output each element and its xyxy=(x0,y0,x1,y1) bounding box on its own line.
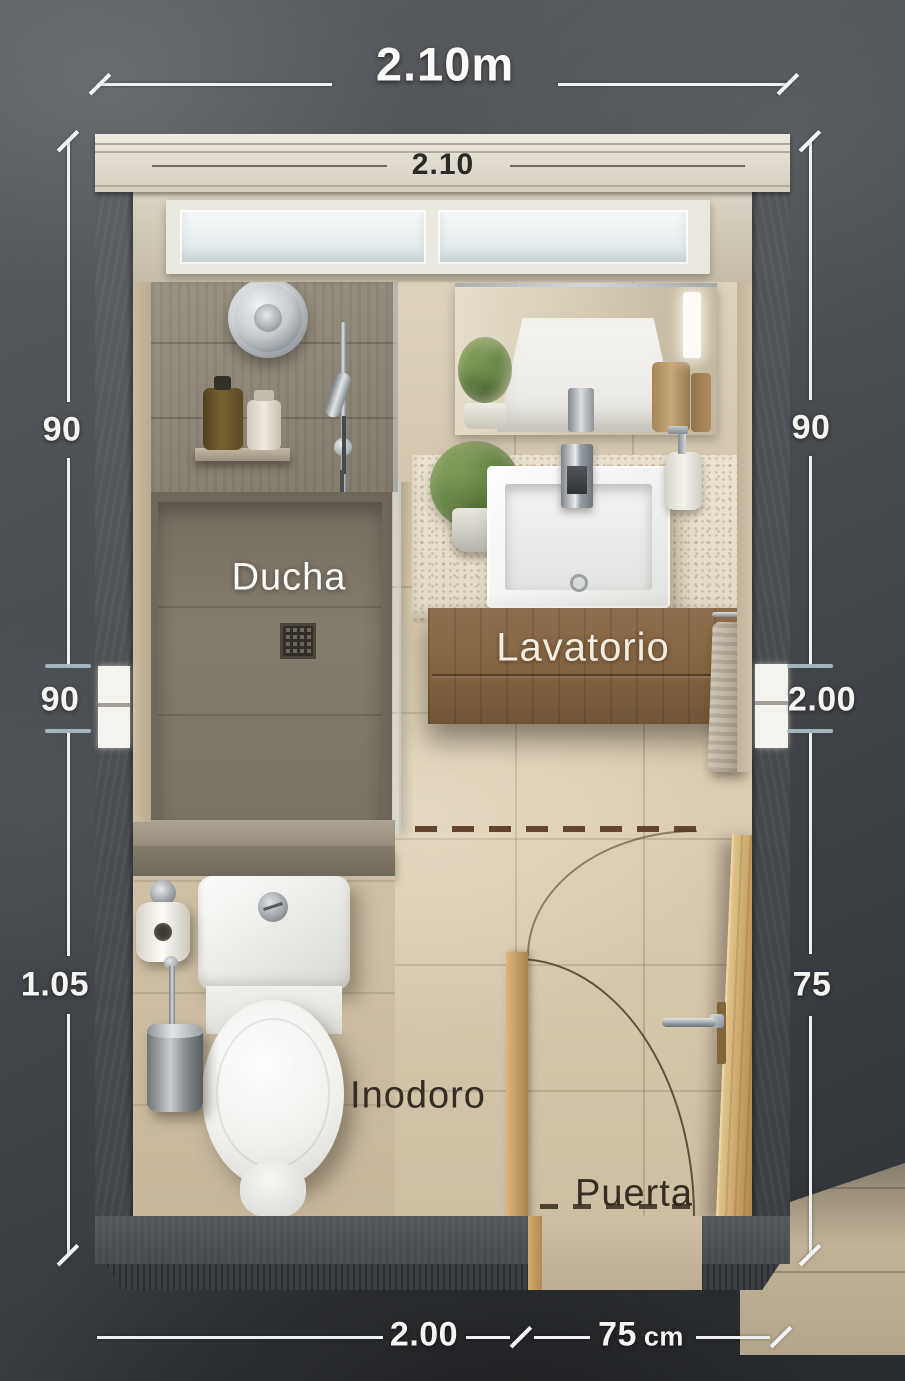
toilet-seat-ring xyxy=(216,1018,330,1168)
toilet-paper-roll xyxy=(136,902,190,962)
opening-extent-tick xyxy=(45,729,91,733)
sink-drain xyxy=(570,574,588,592)
vanity-area-label: Lavatorio xyxy=(496,626,670,671)
half-wall-front xyxy=(133,846,395,876)
dimension-line-segment xyxy=(534,1336,590,1339)
dimension-line-segment xyxy=(97,1336,383,1339)
shower-boundary-dashed-line xyxy=(415,826,707,832)
inner-width-label: 2.10 xyxy=(412,148,474,182)
soap-dispenser xyxy=(666,452,702,510)
mirror-reflection-pot xyxy=(464,403,506,429)
shower-area-label: Ducha xyxy=(232,557,347,600)
left-middle-dimension: 90 xyxy=(41,681,80,720)
dimension-tick xyxy=(510,1326,532,1348)
sink-faucet xyxy=(561,444,593,508)
dimension-line-segment xyxy=(809,456,812,666)
shampoo-bottle-white xyxy=(247,400,281,450)
dimension-line-segment xyxy=(466,1336,510,1339)
shower-tray xyxy=(148,492,392,832)
dimension-line-segment xyxy=(809,733,812,954)
dimension-line-segment xyxy=(809,1016,812,1254)
dimension-line-segment xyxy=(67,733,70,956)
mirror-light-strip xyxy=(683,292,701,358)
toilet-area-label: Inodoro xyxy=(350,1075,486,1118)
floorplan-canvas: Ducha Lavatorio Inodoro xyxy=(0,0,905,1381)
half-wall-top xyxy=(133,820,395,846)
dimension-line-segment xyxy=(100,83,332,86)
toilet-base xyxy=(240,1162,306,1218)
opening-extent-tick xyxy=(787,729,833,733)
dimension-line-segment xyxy=(67,458,70,666)
mirror-reflection-faucet xyxy=(568,388,594,432)
skylight-pane-left xyxy=(180,210,426,264)
opening-extent-tick xyxy=(45,664,91,668)
left-wall-opening-marker xyxy=(98,666,130,748)
rain-shower-head xyxy=(228,278,308,358)
mirror-reflection-soap xyxy=(652,362,690,432)
skylight-pane-right xyxy=(438,210,688,264)
door-threshold xyxy=(528,1216,702,1290)
mirror-reflection-plant xyxy=(458,337,512,403)
outer-width-label: 2.10m xyxy=(376,37,514,92)
left-lower-dimension: 1.05 xyxy=(21,966,89,1005)
dimension-line-segment xyxy=(809,140,812,400)
right-middle-dimension: 2.00 xyxy=(788,681,856,720)
inner-dimension-line-right xyxy=(510,165,745,167)
right-wall-opening-marker xyxy=(755,664,788,748)
toilet-brush-canister xyxy=(147,1024,203,1112)
shampoo-bottle-amber xyxy=(203,388,243,450)
mirror-frame xyxy=(455,283,717,287)
dimension-line-segment xyxy=(558,83,788,86)
bottom-door-value: 75 xyxy=(598,1316,637,1354)
mirror-reflection-bottle xyxy=(691,373,711,432)
flush-button xyxy=(258,892,288,922)
inner-dimension-line-left xyxy=(152,165,387,167)
toilet-brush-handle xyxy=(169,966,175,1028)
right-wall-inner-face xyxy=(737,282,752,772)
left-wall-inner-face xyxy=(133,262,151,822)
bottom-inner-dimension: 2.00 xyxy=(390,1316,458,1355)
door-area-label: Puerta xyxy=(575,1173,693,1216)
vanity-mirror xyxy=(455,285,717,435)
dimension-line-segment xyxy=(67,140,70,402)
right-lower-dimension: 75 xyxy=(793,966,832,1005)
right-upper-dimension: 90 xyxy=(792,409,831,448)
dimension-line-segment xyxy=(67,1014,70,1254)
door-handle-plate xyxy=(717,1002,726,1064)
bottom-door-dimension: 75cm xyxy=(598,1316,684,1355)
opening-extent-tick xyxy=(787,664,833,668)
dimension-line-segment xyxy=(696,1336,770,1339)
left-upper-dimension: 90 xyxy=(43,411,82,450)
shower-drain xyxy=(283,626,313,656)
door-handle-lever xyxy=(662,1018,716,1027)
cabinet-drawer-seam xyxy=(432,674,738,676)
bottom-door-unit: cm xyxy=(644,1322,684,1352)
shower-hose-upper xyxy=(342,416,346,474)
